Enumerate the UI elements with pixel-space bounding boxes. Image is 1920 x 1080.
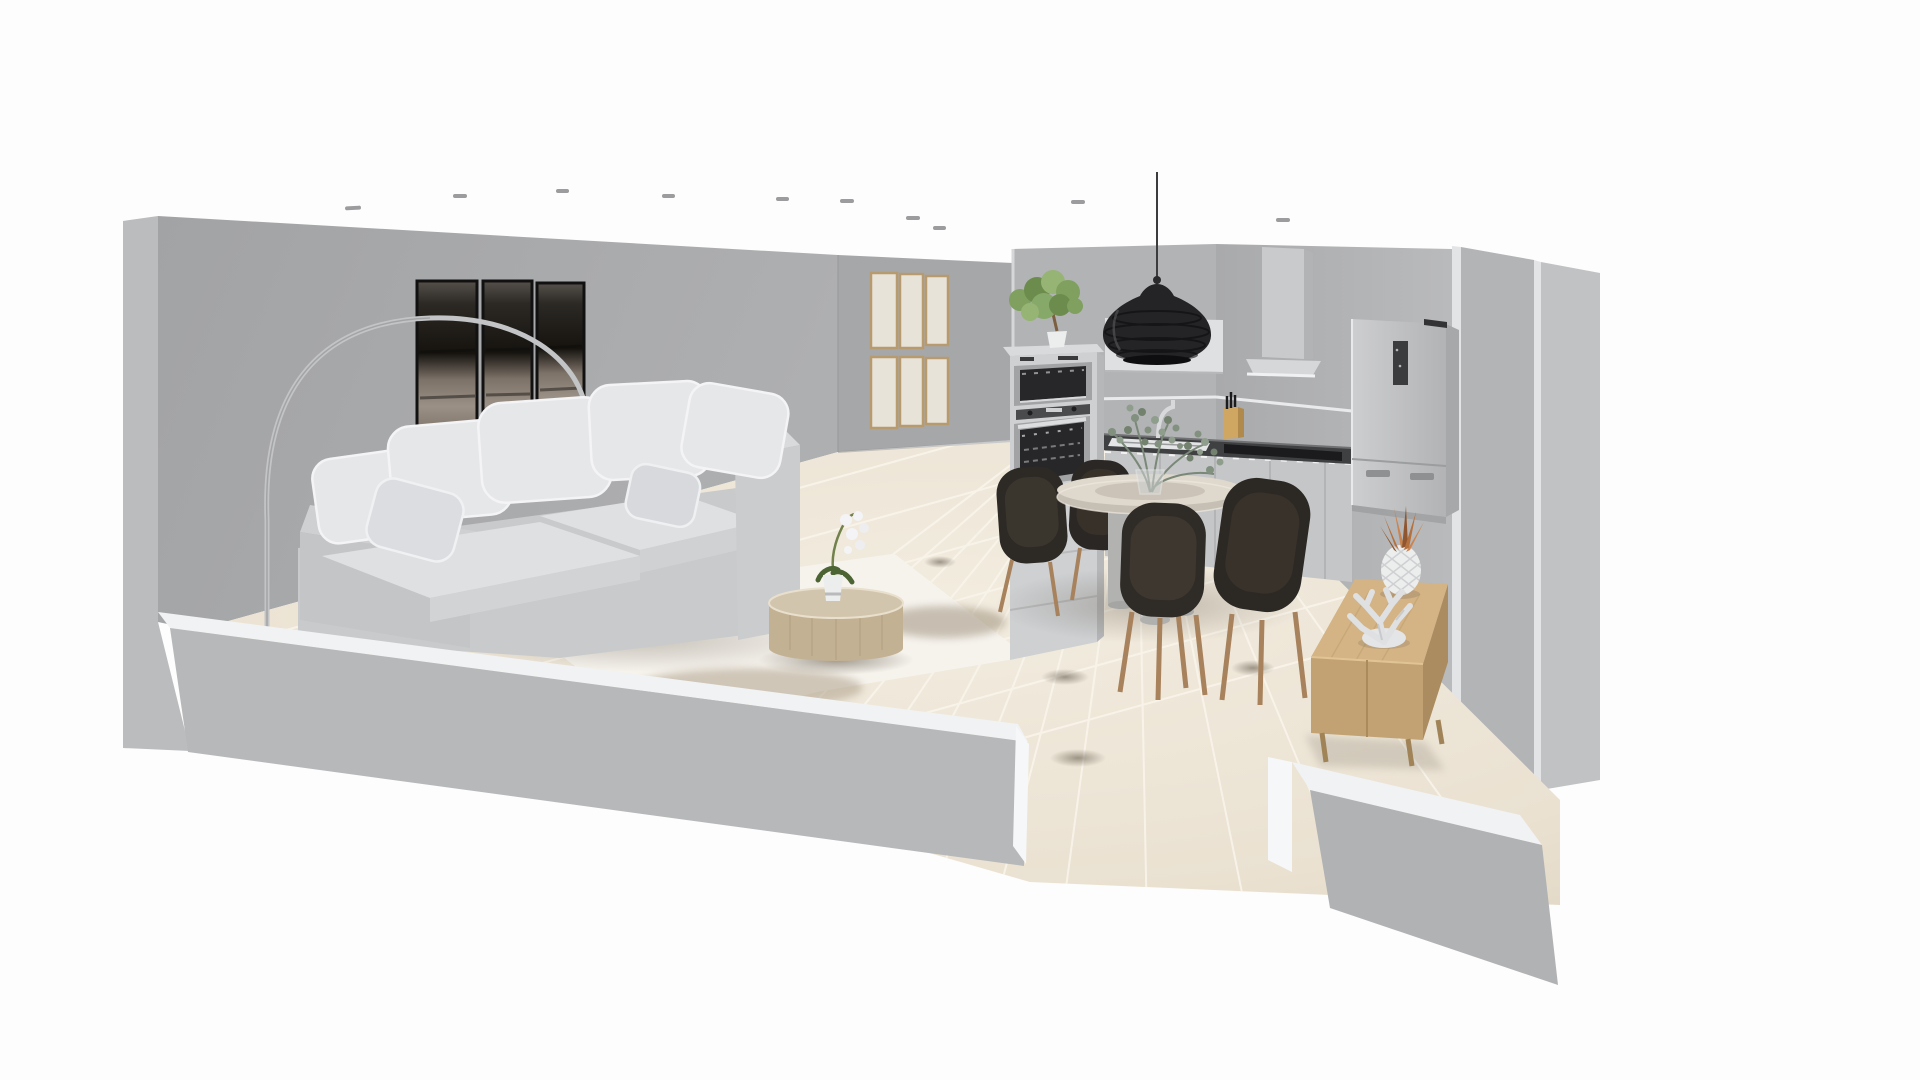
right-wall-edge: [1534, 260, 1541, 790]
spotlight: [933, 226, 946, 230]
planner-3d-viewport: [0, 0, 1920, 1080]
control-dash: [1058, 356, 1078, 360]
right-parapet-end-face: [1268, 757, 1292, 872]
spotlight: [662, 194, 675, 198]
microwave-glass: [1020, 366, 1086, 401]
spotlight: [906, 216, 920, 220]
hood-rim: [1247, 374, 1315, 376]
gallery-frame: [926, 358, 948, 424]
sofa-pillow: [678, 380, 791, 481]
tree-pot: [1047, 331, 1067, 348]
spotlight: [345, 206, 361, 211]
hood-flare: [1246, 359, 1321, 375]
fridge-side: [1446, 324, 1459, 517]
hood-duct-side: [1304, 249, 1313, 359]
chair-inner: [1129, 515, 1198, 601]
gallery-frame: [900, 357, 923, 426]
refrigerator[interactable]: [1352, 319, 1459, 524]
spotlight: [840, 199, 854, 203]
panel-led: [1396, 349, 1399, 352]
freezer-handle: [1366, 470, 1390, 477]
fridge-control-panel[interactable]: [1393, 341, 1408, 385]
round-coffee-table[interactable]: [758, 588, 914, 675]
spotlight: [1071, 200, 1085, 204]
pendant-rim: [1123, 355, 1191, 365]
gallery-frame: [926, 276, 948, 345]
chair-inner: [1003, 475, 1060, 548]
orchid-pot: [823, 575, 843, 601]
knife-block-body: [1223, 407, 1238, 439]
glass-vase: [1136, 470, 1164, 494]
spotlight: [556, 189, 569, 193]
scene-canvas: [0, 0, 1920, 1080]
spotlight: [776, 197, 789, 201]
gallery-frame: [871, 273, 897, 348]
spotlight: [1276, 218, 1290, 222]
hood-duct: [1262, 247, 1304, 359]
microwave[interactable]: [1014, 362, 1092, 406]
pendant-canopy: [1153, 276, 1161, 284]
control-dash: [1020, 357, 1034, 361]
right-wall-panel-b[interactable]: [1461, 247, 1534, 789]
right-wall-panel-c[interactable]: [1541, 262, 1600, 790]
oven-display: [1046, 408, 1062, 412]
panel-led: [1399, 365, 1402, 368]
knife-block-side: [1238, 407, 1244, 438]
gallery-frame: [871, 357, 897, 428]
spotlight: [453, 194, 467, 198]
gallery-frame: [900, 274, 923, 348]
freezer-handle: [1410, 473, 1434, 480]
